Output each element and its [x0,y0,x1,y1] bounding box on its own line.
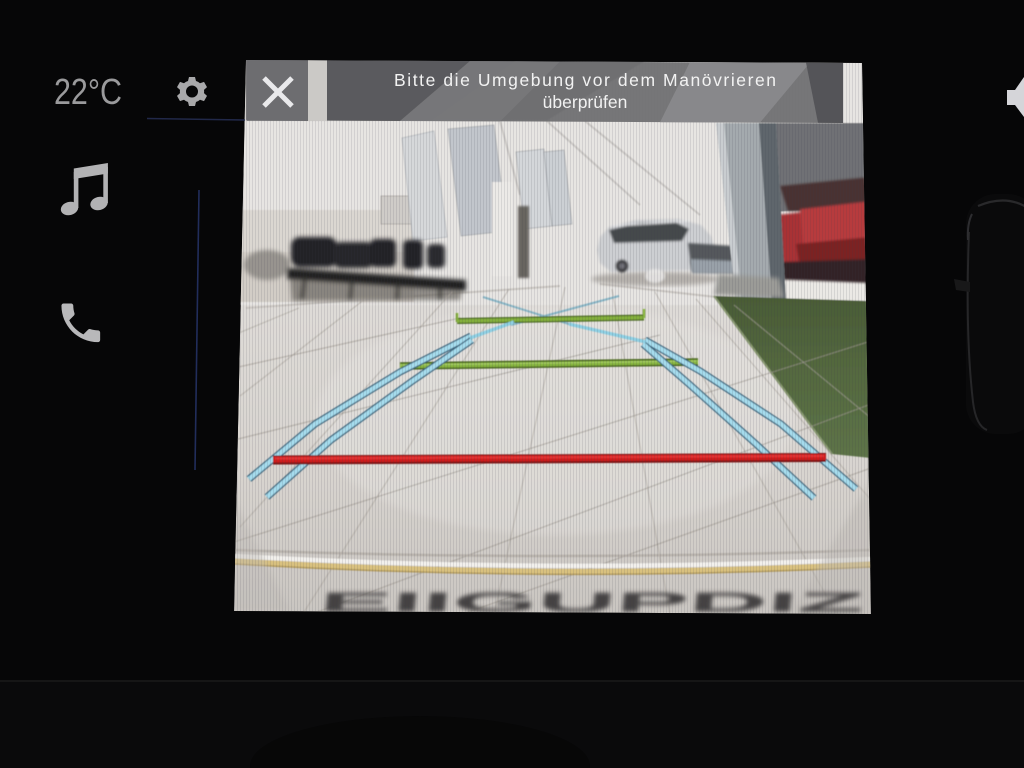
svg-text:Bitte die Umgebung vor dem Man: Bitte die Umgebung vor dem Manövrieren [394,70,776,90]
svg-text:überprüfen: überprüfen [543,92,628,112]
svg-text:22°C: 22°C [54,71,122,112]
